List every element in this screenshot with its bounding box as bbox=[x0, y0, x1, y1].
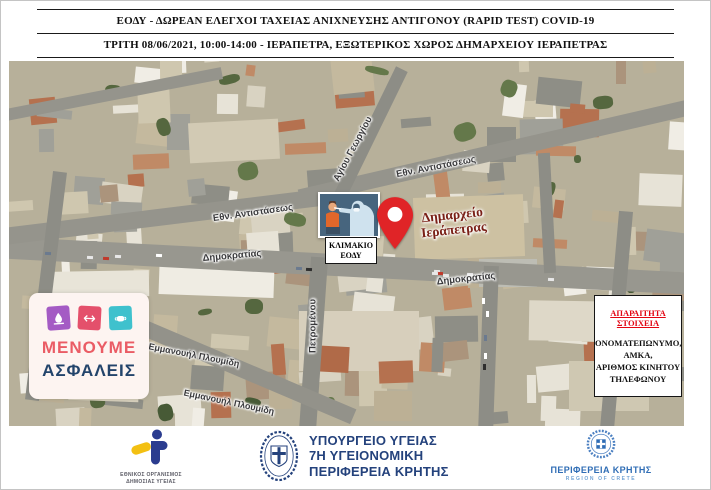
required-info-line: ΟΝΟΜΑΤΕΠΩΝΥΜΟ, bbox=[595, 337, 681, 349]
street-label: Αγίου Γεωργίου bbox=[331, 115, 374, 184]
required-info-lines: ΟΝΟΜΑΤΕΠΩΝΥΜΟ, ΑΜΚΑ, ΑΡΙΘΜΟΣ ΚΙΝΗΤΟΥ ΤΗΛ… bbox=[595, 337, 681, 385]
street-label: Εθν. Αντιστάσεως bbox=[395, 154, 476, 180]
required-info-title: ΑΠΑΡΑΙΤΗΤΑ ΣΤΟΙΧΕΙΑ bbox=[595, 308, 681, 328]
crete-line1: ΠΕΡΙΦΕΡΕΙΑ ΚΡΗΤΗΣ bbox=[546, 465, 656, 475]
street-label: Εθν. Αντιστάσεως bbox=[212, 202, 293, 224]
swab-test-illustration bbox=[320, 194, 378, 236]
eody-logo-icon bbox=[127, 428, 175, 466]
eody-team-label-line2: ΕΟΔΥ bbox=[340, 251, 361, 261]
footer: ΕΘΝΙΚΟΣ ΟΡΓΑΝΙΣΜΟΣ ΔΗΜΟΣΙΑΣ ΥΓΕΙΑΣ ΥΠΟΥΡ… bbox=[1, 426, 711, 490]
stay-safe-line1: ΜΕΝΟΥΜΕ bbox=[29, 338, 149, 358]
street-label: Δημοκρατίας bbox=[436, 270, 496, 287]
street-label: Πετρομένου bbox=[308, 299, 319, 353]
crete-line2: REGION OF CRETE bbox=[546, 476, 656, 482]
eody-logo-line2: ΔΗΜΟΣΙΑΣ ΥΓΕΙΑΣ bbox=[91, 479, 211, 486]
header-title: ΕΟΔΥ - ΔΩΡΕΑΝ ΕΛΕΓΧΟΙ ΤΑΧΕΙΑΣ ΑΝΙΧΝΕΥΣΗΣ… bbox=[37, 10, 674, 34]
street-label: Δημοκρατίας bbox=[202, 248, 262, 264]
header-subtitle: ΤΡΙΤΗ 08/06/2021, 10:00-14:00 - ΙΕΡΑΠΕΤΡ… bbox=[37, 34, 674, 58]
crete-emblem-icon bbox=[586, 429, 616, 459]
stay-safe-icons bbox=[29, 306, 149, 330]
mask-icon bbox=[108, 306, 132, 331]
street-label: Εμμανουήλ Πλουμίδη bbox=[183, 388, 275, 417]
distance-icon bbox=[77, 305, 101, 330]
required-info-line: ΤΗΛΕΦΩΝΟΥ bbox=[595, 373, 681, 385]
street-label: Εμμανουήλ Πλουμίδη bbox=[148, 341, 241, 368]
header: ΕΟΔΥ - ΔΩΡΕΑΝ ΕΛΕΓΧΟΙ ΤΑΧΕΙΑΣ ΑΝΙΧΝΕΥΣΗΣ… bbox=[37, 9, 674, 58]
poster: ΕΟΔΥ - ΔΩΡΕΑΝ ΕΛΕΓΧΟΙ ΤΑΧΕΙΑΣ ΑΝΙΧΝΕΥΣΗΣ… bbox=[0, 0, 711, 490]
greek-coat-of-arms-icon bbox=[259, 430, 299, 482]
eody-logo: ΕΘΝΙΚΟΣ ΟΡΓΑΝΙΣΜΟΣ ΔΗΜΟΣΙΑΣ ΥΓΕΙΑΣ bbox=[91, 428, 211, 485]
ministry-line3: ΠΕΡΙΦΕΡΕΙΑ ΚΡΗΤΗΣ bbox=[309, 464, 449, 480]
ministry-line2: 7Η ΥΓΕΙΟΝΟΜΙΚΗ bbox=[309, 448, 449, 464]
eody-team-panel bbox=[318, 192, 380, 238]
stay-safe-line2: ΑΣΦΑΛΕΙΣ bbox=[29, 361, 149, 381]
region-of-crete-logo: ΠΕΡΙΦΕΡΕΙΑ ΚΡΗΤΗΣ REGION OF CRETE bbox=[546, 429, 656, 482]
eody-team-label: ΚΛΙΜΑΚΙΟ ΕΟΔΥ bbox=[325, 237, 377, 264]
required-info-line: ΑΜΚΑ, bbox=[595, 349, 681, 361]
eody-team-label-line1: ΚΛΙΜΑΚΙΟ bbox=[329, 241, 373, 251]
ministry-logo: ΥΠΟΥΡΓΕΙΟ ΥΓΕΙΑΣ 7Η ΥΓΕΙΟΝΟΜΙΚΗ ΠΕΡΙΦΕΡΕ… bbox=[259, 430, 449, 482]
ministry-line1: ΥΠΟΥΡΓΕΙΟ ΥΓΕΙΑΣ bbox=[309, 433, 449, 449]
handwash-icon bbox=[46, 305, 71, 331]
required-info-box: ΑΠΑΡΑΙΤΗΤΑ ΣΤΟΙΧΕΙΑ ΟΝΟΜΑΤΕΠΩΝΥΜΟ, ΑΜΚΑ,… bbox=[594, 295, 682, 397]
stay-safe-badge: ΜΕΝΟΥΜΕ ΑΣΦΑΛΕΙΣ bbox=[29, 293, 149, 399]
satellite-map: Αγίου Γεωργίου Εθν. Αντιστάσεως Εθν. Αντ… bbox=[9, 61, 684, 426]
required-info-line: ΑΡΙΘΜΟΣ ΚΙΝΗΤΟΥ bbox=[595, 361, 681, 373]
